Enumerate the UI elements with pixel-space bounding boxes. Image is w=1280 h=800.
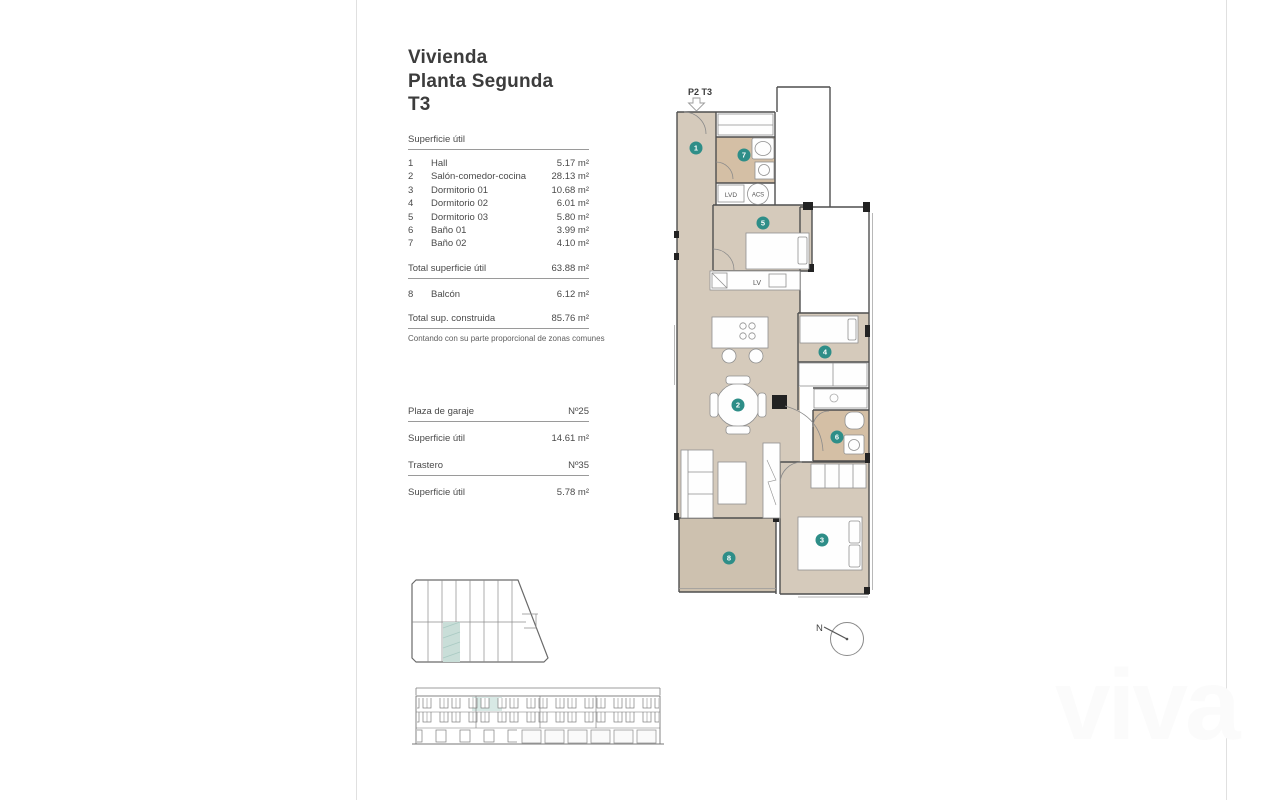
entry-arrow-icon (689, 98, 705, 111)
room-area: 10.68 m² (552, 184, 590, 197)
total-built-row: Total sup. construida 85.76 m² (408, 313, 589, 329)
kitchen-island (712, 317, 768, 348)
elevation-windows (417, 698, 659, 743)
table-row: 3 Dormitorio 01 10.68 m² (408, 184, 589, 197)
surface-table-header: Superficie útil (408, 134, 589, 150)
garage-row: Plaza de garaje Nº25 (408, 406, 589, 422)
room-number: 2 (408, 170, 431, 183)
storage-area-label: Superficie útil (408, 487, 557, 498)
room-marker: 2 (732, 399, 745, 412)
garage-label: Plaza de garaje (408, 406, 568, 417)
surface-table: Superficie útil 1 Hall 5.17 m² 2 Salón-c… (408, 134, 589, 343)
room-name: Salón-comedor-cocina (431, 170, 552, 183)
svg-text:5: 5 (761, 219, 765, 228)
room-name: Baño 01 (431, 224, 557, 237)
room-number: 6 (408, 224, 431, 237)
coffee-table-icon (718, 462, 746, 504)
svg-text:1: 1 (694, 144, 698, 153)
elevation-roofline (416, 688, 660, 695)
garage-area-label: Superficie útil (408, 433, 552, 444)
storage-row: Trastero Nº35 (408, 460, 589, 476)
room-area: 6.01 m² (557, 197, 589, 210)
room-area: 5.17 m² (557, 157, 589, 170)
plan-unit-label: P2 T3 (688, 87, 712, 97)
table-row: 7 Baño 02 4.10 m² (408, 237, 589, 250)
compass-needle (824, 627, 847, 639)
bathtub-icon (845, 412, 864, 429)
room-area: 3.99 m² (557, 224, 589, 237)
table-row: 1 Hall 5.17 m² (408, 157, 589, 170)
sofa-icon (681, 450, 713, 518)
room-name: Dormitorio 02 (431, 197, 557, 210)
site-unit-highlight (443, 622, 460, 662)
total-built-label: Total sup. construida (408, 313, 552, 324)
garage-storage-block: Plaza de garaje Nº25 Superficie útil 14.… (408, 406, 589, 498)
garage-area-row: Superficie útil 14.61 m² (408, 433, 589, 444)
common-zones-note: Contando con su parte proporcional de zo… (408, 334, 589, 343)
title-line-1: Vivienda (408, 46, 553, 70)
watermark: viva (1055, 648, 1238, 763)
room-area: 28.13 m² (552, 170, 590, 183)
room-name: Balcón (431, 288, 557, 301)
washer-label: LVD (725, 192, 737, 199)
room-area: 6.12 m² (557, 288, 589, 301)
total-useful-value: 63.88 m² (552, 263, 590, 274)
garage-area-value: 14.61 m² (552, 433, 590, 444)
site-plan (408, 576, 550, 668)
site-grid-lines (412, 580, 526, 662)
svg-text:8: 8 (727, 554, 731, 563)
compass: N (810, 612, 880, 668)
page-divider-left (356, 0, 357, 800)
room-name: Dormitorio 03 (431, 211, 557, 224)
svg-text:2: 2 (736, 401, 740, 410)
room-marker: 4 (819, 346, 832, 359)
page-title: Vivienda Planta Segunda T3 (408, 46, 553, 117)
room-number: 1 (408, 157, 431, 170)
room-name: Baño 02 (431, 237, 557, 250)
room-marker: 1 (690, 142, 703, 155)
bed-double-icon (798, 517, 862, 570)
table-row: 4 Dormitorio 02 6.01 m² (408, 197, 589, 210)
sink-icon (755, 162, 774, 179)
room-number: 5 (408, 211, 431, 224)
brochure-page: Vivienda Planta Segunda T3 Superficie út… (0, 0, 1280, 800)
room-number: 4 (408, 197, 431, 210)
room-area: 4.10 m² (557, 237, 589, 250)
storage-number: Nº35 (568, 460, 589, 471)
floor-plan: P2 T3 (672, 85, 882, 610)
storage-area-value: 5.78 m² (557, 487, 589, 498)
room-name: Hall (431, 157, 557, 170)
compass-north-label: N (816, 623, 823, 634)
balcony-row: 8 Balcón 6.12 m² (408, 288, 589, 301)
total-useful-label: Total superficie útil (408, 263, 552, 274)
toilet-icon (844, 435, 864, 454)
total-built-value: 85.76 m² (552, 313, 590, 324)
surface-table-rows: 1 Hall 5.17 m² 2 Salón-comedor-cocina 28… (408, 157, 589, 251)
table-row: 5 Dormitorio 03 5.80 m² (408, 211, 589, 224)
room-area: 5.80 m² (557, 211, 589, 224)
table-row: 2 Salón-comedor-cocina 28.13 m² (408, 170, 589, 183)
wardrobe-icon (799, 363, 867, 386)
storage-label: Trastero (408, 460, 568, 471)
room-number: 7 (408, 237, 431, 250)
svg-text:7: 7 (742, 151, 746, 160)
garage-number: Nº25 (568, 406, 589, 417)
dishwasher-label: LV (753, 280, 761, 287)
water-heater-label: ACS (752, 193, 764, 199)
bed-single-icon (746, 233, 809, 269)
room-marker: 3 (816, 534, 829, 547)
site-outline (412, 580, 548, 662)
svg-text:3: 3 (820, 536, 824, 545)
title-line-3: T3 (408, 93, 553, 117)
room-number: 8 (408, 288, 431, 301)
room-name: Dormitorio 01 (431, 184, 552, 197)
svg-text:6: 6 (835, 433, 839, 442)
total-useful-row: Total superficie útil 63.88 m² (408, 263, 589, 279)
room-number: 3 (408, 184, 431, 197)
wardrobe-icon (811, 464, 866, 488)
storage-area-row: Superficie útil 5.78 m² (408, 487, 589, 498)
room-marker: 5 (757, 217, 770, 230)
room-marker: 6 (831, 431, 844, 444)
sideboard-icon (763, 443, 780, 518)
bathtub-icon (752, 138, 774, 159)
vanity-icon (814, 389, 867, 408)
bed-single-icon (800, 316, 858, 343)
closet-icon (718, 114, 773, 135)
room-marker: 8 (723, 552, 736, 565)
table-row: 6 Baño 01 3.99 m² (408, 224, 589, 237)
compass-center-dot (846, 638, 849, 641)
room-marker: 7 (738, 149, 751, 162)
title-line-2: Planta Segunda (408, 70, 553, 94)
building-elevation (410, 682, 666, 750)
